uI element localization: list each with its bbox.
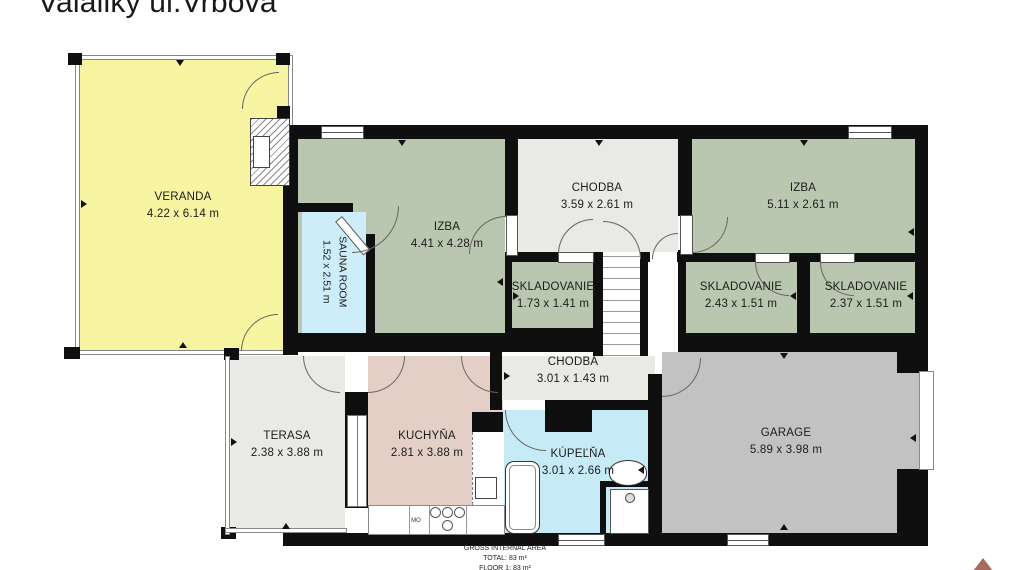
window xyxy=(727,534,769,546)
staircase xyxy=(603,256,640,357)
garage-door xyxy=(919,371,934,470)
wall xyxy=(692,253,755,262)
direction-tick xyxy=(176,60,184,66)
direction-tick xyxy=(398,140,406,146)
wall xyxy=(915,125,928,355)
wall xyxy=(897,352,928,373)
room-label-kupelna: KÚPEĽŇA 3.01 x 2.66 m xyxy=(518,446,638,480)
room-label-sklad2: SKLADOVANIE 2.43 x 1.51 m xyxy=(686,280,796,312)
room-label-terasa: TERASA 2.38 x 3.88 m xyxy=(227,428,347,462)
wall xyxy=(648,374,662,533)
room-label-chodba2: CHODBA 3.01 x 1.43 m xyxy=(513,354,633,388)
wall xyxy=(853,253,915,262)
wall xyxy=(298,203,353,212)
direction-tick xyxy=(81,200,87,208)
shower-head-icon xyxy=(625,493,635,503)
wall xyxy=(545,400,592,432)
direction-tick xyxy=(910,434,916,442)
wall-corner-block xyxy=(64,347,80,359)
direction-tick xyxy=(800,140,808,146)
direction-tick xyxy=(908,228,914,236)
room-label-veranda: VERANDA 4.22 x 6.14 m xyxy=(123,189,243,223)
microwave-label: MO xyxy=(405,518,427,524)
area-summary-title: GROSS INTERNAL AREA xyxy=(370,544,640,554)
room-label-sklad1: SKLADOVANIE 1.73 x 1.41 m xyxy=(498,280,608,312)
room-label-sauna: SAUNA ROOM 1.52 x 2.51 m xyxy=(278,214,390,330)
wall xyxy=(640,252,648,356)
wall xyxy=(283,125,928,139)
boiler xyxy=(475,477,497,499)
room-label-kuchyna: KUCHYŇA 2.81 x 3.88 m xyxy=(367,428,487,462)
area-summary-floor: FLOOR 1: 83 m² xyxy=(370,564,640,570)
room-label-izba1: IZBA 4.41 x 4.28 m xyxy=(387,219,507,253)
area-summary: GROSS INTERNAL AREA TOTAL: 83 m² FLOOR 1… xyxy=(370,544,640,570)
closet xyxy=(347,415,367,507)
wall-corner-block xyxy=(276,53,290,65)
door-leaf xyxy=(506,215,518,256)
shower xyxy=(610,489,649,534)
direction-tick xyxy=(179,342,187,348)
page-title: Valaliky ul.Vrbová xyxy=(38,0,277,20)
area-summary-total: TOTAL: 83 m² xyxy=(370,554,640,564)
wall xyxy=(797,262,810,333)
direction-tick xyxy=(638,466,644,474)
wall xyxy=(788,253,820,262)
window xyxy=(848,126,892,139)
direction-tick xyxy=(780,524,788,530)
wall xyxy=(505,139,518,216)
direction-tick xyxy=(282,523,290,529)
direction-tick xyxy=(504,372,510,380)
wall xyxy=(505,328,598,352)
stove-icon xyxy=(429,506,465,532)
wall-corner-block xyxy=(68,53,82,65)
counter-divider xyxy=(466,506,467,534)
wall xyxy=(600,481,606,533)
window xyxy=(321,126,364,139)
room-label-garage: GARAGE 5.89 x 3.98 m xyxy=(726,425,846,459)
wall xyxy=(897,469,928,533)
wall xyxy=(678,262,686,333)
direction-tick xyxy=(780,353,788,359)
room-label-izba2: IZBA 5.11 x 2.61 m xyxy=(743,180,863,214)
wall xyxy=(678,333,928,352)
direction-tick xyxy=(595,140,603,146)
fireplace-chimney xyxy=(250,118,290,186)
fireplace-opening xyxy=(253,136,270,168)
floor-plan: Valaliky ul.Vrbová xyxy=(0,0,1011,570)
room-label-chodba1: CHODBA 3.59 x 2.61 m xyxy=(537,180,657,214)
wall xyxy=(678,139,692,216)
wall xyxy=(283,333,505,352)
room-label-sklad3: SKLADOVANIE 2.37 x 1.51 m xyxy=(811,280,921,312)
brand-logo-icon xyxy=(973,558,993,570)
